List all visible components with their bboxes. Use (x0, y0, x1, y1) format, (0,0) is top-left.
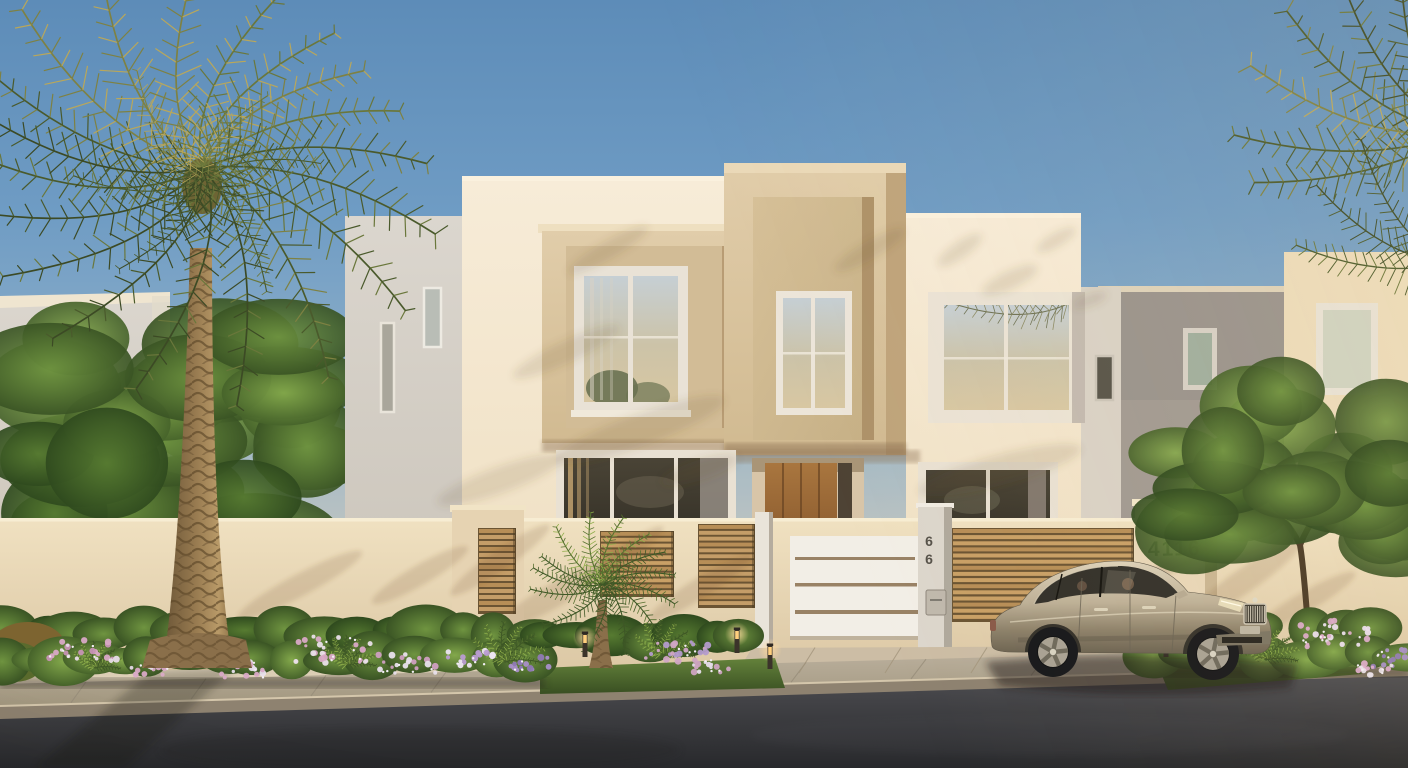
wood-slat (479, 529, 515, 533)
gate-bottom-shadow (790, 636, 920, 640)
bollard-cap (767, 644, 773, 647)
flower-dot (1381, 651, 1383, 653)
flower-dot (330, 659, 332, 661)
flower-dot (368, 641, 373, 646)
wood-slat (479, 535, 515, 539)
flower-dot (521, 660, 523, 662)
flower-dot (474, 661, 476, 663)
upper-right-window-rail (944, 357, 1069, 360)
flower-dot (389, 652, 396, 659)
flower-dot (1298, 622, 1305, 629)
flower-dot (262, 676, 264, 678)
flower-dot (686, 654, 688, 656)
flower-dot (390, 666, 393, 669)
flower-dot (710, 670, 712, 672)
flower-dot (1305, 644, 1310, 649)
flower-dot (472, 657, 474, 659)
wood-slat (699, 595, 754, 599)
gate-pillar-shade (944, 507, 952, 650)
gate-unit-number: 66 (921, 533, 937, 569)
bollard-cap (734, 628, 740, 631)
palm-fronds-top-right (1228, 0, 1408, 295)
flower-dot (1362, 626, 1367, 631)
flower-dot (1395, 653, 1401, 659)
flower-dot (670, 651, 674, 655)
flower-dot (353, 642, 358, 647)
flower-dot (364, 659, 368, 663)
car-rear-wheel (1028, 627, 1078, 677)
flower-dot (458, 659, 462, 663)
flower-dot (109, 658, 114, 663)
wood-slat (699, 525, 754, 529)
flower-dot (382, 671, 384, 673)
flower-dot (232, 670, 235, 673)
flower-dot (691, 642, 695, 646)
tree-canopy-blob (1182, 407, 1265, 494)
flower-dot (130, 666, 134, 670)
flower-dot (89, 648, 95, 654)
flower-dot (304, 644, 307, 647)
wood-slat (479, 595, 515, 599)
flower-dot (254, 669, 256, 671)
flower-dot (430, 668, 432, 670)
flower-dot (260, 668, 265, 673)
palm-frond-leaflets (10, 10, 189, 181)
flower-dot (312, 635, 316, 639)
flower-dot (432, 663, 439, 670)
flower-dot (663, 642, 670, 649)
wood-slat (953, 554, 1133, 558)
flower-dot (718, 670, 720, 672)
wood-slat (699, 537, 754, 541)
car-bumper-intake (1222, 637, 1262, 643)
flower-dot (546, 664, 552, 670)
flower-dot (1381, 672, 1383, 674)
flower-dot (411, 659, 416, 664)
main-villa (345, 163, 1121, 560)
car-plate (1240, 626, 1260, 634)
flower-dot (1361, 660, 1368, 667)
flower-dot (412, 671, 414, 673)
flower-dot (676, 651, 682, 657)
flower-dot (1305, 641, 1307, 643)
white-driveway-gate (790, 536, 920, 640)
bollard-lamp (735, 631, 739, 639)
flower-dot (1323, 631, 1325, 633)
wood-panel-shade (671, 531, 674, 597)
flower-dot (1320, 636, 1322, 638)
flower-dot (377, 667, 383, 673)
flower-dot (683, 648, 688, 653)
villa-exterior-render: 66 4116 (0, 0, 1408, 768)
flower-dot (386, 670, 388, 672)
far-right-window-glass (1323, 310, 1371, 388)
gate-slot (795, 610, 919, 614)
flower-dot (433, 671, 437, 675)
hub (1050, 649, 1056, 655)
flower-dot (325, 641, 327, 643)
palm-frond-spine (1287, 11, 1408, 132)
flower-dot (302, 637, 308, 643)
center-tower-cap (724, 163, 906, 173)
flower-dot (105, 639, 112, 646)
flower-dot (403, 663, 409, 669)
flower-dot (398, 664, 400, 666)
flower-dot (694, 665, 699, 670)
flower-dot (698, 650, 704, 656)
flower-dot (1382, 654, 1386, 658)
flower-dot (521, 669, 523, 671)
flower-dot (75, 656, 79, 660)
flower-dot (684, 645, 686, 647)
car-door-handle (1094, 608, 1108, 611)
flower-dot (1359, 636, 1361, 638)
flower-dot (663, 656, 670, 663)
palm-frond-spine (202, 111, 400, 168)
center-tower-panel-shadow (862, 197, 874, 440)
flower-dot (475, 650, 481, 656)
flower-dot (1357, 664, 1359, 666)
flower-dot (545, 656, 549, 660)
flower-dot (537, 654, 544, 661)
flower-dot (1302, 639, 1304, 641)
car-door-handle (1142, 606, 1156, 609)
flower-dot (691, 669, 698, 676)
villa-right-parapet (906, 213, 1081, 218)
flower-dot (527, 665, 534, 672)
flower-dot (726, 667, 731, 672)
flower-dot (49, 655, 51, 657)
flower-dot (316, 636, 322, 642)
flower-dot (1366, 666, 1370, 670)
flower-dot (417, 656, 421, 660)
flower-dot (1385, 648, 1389, 652)
wood-slat (601, 532, 673, 536)
flower-dot (514, 669, 516, 671)
flower-dot (1326, 641, 1330, 645)
palm-frond-leaflets (1275, 11, 1408, 159)
palm-frond-leaflets (1251, 52, 1408, 175)
flower-dot (489, 652, 496, 659)
flower-dot (1387, 656, 1389, 658)
palm-trunk-base-texture (142, 633, 252, 668)
flower-dot (460, 654, 466, 660)
flower-dot (93, 656, 95, 658)
flower-dot (705, 660, 707, 662)
wood-slat (479, 607, 515, 611)
upper-left-window-mullion (628, 276, 633, 402)
flower-dot (1367, 672, 1373, 678)
wood-slat (699, 531, 754, 535)
bollard-lamp (768, 647, 772, 655)
wood-slat (699, 601, 754, 605)
flower-dot (649, 652, 653, 656)
bollard-cap (582, 632, 588, 635)
palm-frond-leaflets (1239, 65, 1408, 163)
flower-dot (1323, 623, 1326, 626)
flower-dot (393, 671, 396, 674)
flower-dot (294, 659, 297, 662)
flower-dot (1371, 666, 1374, 669)
wood-slat (479, 583, 515, 587)
flower-dot (509, 664, 514, 669)
right-side-small-window (1096, 356, 1113, 400)
flower-dot (1364, 636, 1370, 642)
flower-dot (446, 655, 450, 659)
flower-dot (1356, 643, 1360, 647)
flower-dot (656, 642, 659, 645)
wood-slat (953, 535, 1133, 539)
hub (1210, 651, 1216, 657)
flower-dot (694, 650, 696, 652)
flower-dot (1306, 627, 1310, 631)
flower-dot (484, 650, 490, 656)
flower-dot (1328, 618, 1335, 625)
wood-slat (699, 548, 754, 552)
flower-dot (219, 672, 224, 677)
flower-dot (415, 666, 419, 670)
flower-dot (358, 660, 361, 663)
flower-dot (1356, 668, 1362, 674)
flower-dot (1332, 624, 1338, 630)
flower-dot (359, 658, 361, 660)
flower-dot (675, 658, 682, 665)
flower-dot (644, 656, 648, 660)
flower-dot (710, 659, 712, 661)
tree-canopy-blob (201, 299, 355, 375)
flower-dot (67, 656, 69, 658)
flower-dot (670, 642, 677, 649)
flower-dot (1389, 664, 1393, 668)
flower-dot (400, 655, 405, 660)
flower-dot (1381, 662, 1386, 667)
road-tone-patch (750, 715, 1350, 755)
wood-slat (699, 543, 754, 547)
flower-dot (78, 650, 84, 656)
wood-slat (953, 529, 1133, 533)
gate-slot (795, 557, 915, 560)
villa-main-parapet (462, 176, 735, 181)
gate-pilaster-shade (769, 512, 773, 650)
flower-dot (1377, 654, 1379, 656)
flower-dot (59, 639, 65, 645)
flower-dot (243, 673, 249, 679)
flower-dot (375, 652, 381, 658)
car-interior-hint (1122, 578, 1134, 590)
flower-dot (296, 639, 302, 645)
flower-dot (349, 637, 351, 639)
flower-dot (425, 661, 432, 668)
flower-dot (1327, 634, 1331, 638)
flower-dot (1321, 639, 1323, 641)
tree-canopy-blob (46, 408, 168, 519)
flower-dot (113, 656, 120, 663)
flower-dot (467, 663, 472, 668)
flower-dot (1382, 668, 1384, 670)
flower-dot (1348, 631, 1352, 635)
flower-dot (72, 646, 74, 648)
flower-dot (317, 642, 323, 648)
center-tower-right-return (886, 173, 906, 455)
bollard-lamp (583, 635, 587, 643)
background-building-right-roofline (1098, 286, 1284, 292)
flower-dot (1387, 659, 1392, 664)
flower-dot (92, 645, 94, 647)
car-hood-emblem (1252, 597, 1257, 602)
flower-dot (1340, 642, 1345, 647)
flower-dot (1342, 631, 1346, 635)
flower-dot (223, 675, 227, 679)
palm-frond-spine (1255, 132, 1408, 183)
flower-dot (657, 649, 660, 652)
flower-dot (360, 646, 366, 652)
flower-dot (336, 635, 341, 640)
tower-window-rail (783, 352, 845, 355)
flower-dot (66, 644, 69, 647)
flower-dot (678, 648, 680, 650)
background-window-glass (1188, 333, 1212, 385)
flower-dot (1303, 633, 1309, 639)
wood-slat (953, 541, 1133, 545)
flower-dot (697, 670, 701, 674)
wood-slat (953, 547, 1133, 551)
left-wing-small-window (424, 288, 441, 347)
flower-dot (318, 656, 324, 662)
flower-dot (62, 650, 64, 652)
flower-dot (1313, 631, 1319, 637)
flower-dot (1402, 654, 1408, 660)
flower-dot (253, 662, 255, 664)
flower-dot (688, 651, 690, 653)
left-wing-narrow-window (381, 323, 394, 412)
flower-dot (310, 650, 316, 656)
flower-dot (135, 668, 140, 673)
flower-dot (161, 673, 165, 677)
flower-dot (704, 642, 711, 649)
flower-dot (382, 660, 385, 663)
wood-slat (479, 601, 515, 605)
gate-slot (795, 583, 917, 587)
flower-dot (353, 649, 355, 651)
flower-dot (140, 664, 142, 666)
flower-dot (1328, 625, 1332, 629)
flower-dot (254, 672, 259, 677)
upper-right-frame-shade (1072, 292, 1085, 423)
flower-dot (81, 637, 87, 643)
flower-dot (456, 663, 458, 665)
flower-dot (714, 664, 720, 670)
flower-dot (1399, 647, 1404, 652)
flower-dot (706, 662, 712, 668)
wood-panel-shade (752, 524, 755, 608)
car-taillight (990, 620, 996, 631)
mailbox (926, 590, 946, 615)
wood-slat (479, 589, 515, 593)
flower-dot (142, 671, 148, 677)
flower-dot (332, 656, 334, 658)
flower-dot (702, 649, 709, 656)
flower-dot (354, 639, 356, 641)
flower-dot (483, 663, 485, 665)
flower-dot (1324, 636, 1326, 638)
tree-canopy-blob (1131, 488, 1238, 540)
flower-dot (1361, 669, 1363, 671)
scene-canvas: 66 4116 (0, 0, 1408, 768)
flower-dot (446, 649, 451, 654)
tree-canopy-blob (1237, 357, 1325, 426)
